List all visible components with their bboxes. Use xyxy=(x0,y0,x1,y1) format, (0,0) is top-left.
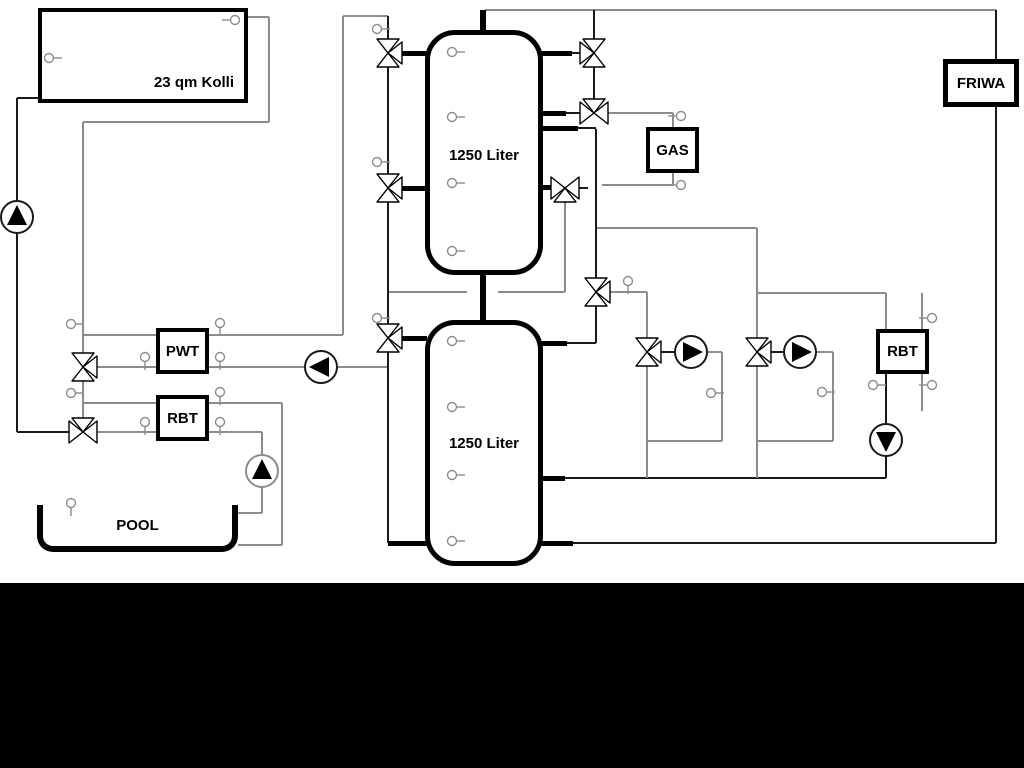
temperature-sensor-icon xyxy=(207,409,233,435)
pipe-segment xyxy=(281,403,283,545)
temperature-sensor-icon xyxy=(222,7,248,33)
pipe-segment xyxy=(758,440,833,442)
pipe-segment xyxy=(16,233,18,432)
rbt-left-label: RBT xyxy=(167,410,198,427)
pipe-segment xyxy=(647,440,722,442)
diagram-canvas: 23 qm Kolli 1250 Liter 1250 Liter PWT RB… xyxy=(0,0,1024,768)
pump-icon xyxy=(868,422,904,458)
rbt-right-label: RBT xyxy=(887,343,918,360)
pipe-segment xyxy=(338,366,388,368)
temperature-sensor-icon xyxy=(439,394,465,420)
temperature-sensor-icon xyxy=(36,45,62,71)
temperature-sensor-icon xyxy=(439,238,465,264)
pipe-segment xyxy=(596,227,757,229)
pump-icon xyxy=(303,349,339,385)
rbt-left-box: RBT xyxy=(156,395,209,441)
pipe-segment xyxy=(885,293,887,329)
buffer-tank-bottom-label: 1250 Liter xyxy=(430,435,538,452)
temperature-sensor-icon xyxy=(919,372,945,398)
pipe-segment xyxy=(593,64,595,102)
pipe-segment xyxy=(342,16,344,335)
three-way-valve-icon xyxy=(68,417,98,447)
pipe-segment xyxy=(387,351,389,543)
pump-icon xyxy=(0,199,35,235)
pipe-segment xyxy=(595,129,597,281)
pool-label: POOL xyxy=(116,517,159,534)
temperature-sensor-icon xyxy=(615,268,641,294)
pipe-segment xyxy=(261,487,263,513)
pipe-segment xyxy=(567,342,596,344)
gas-boiler-box: GAS xyxy=(646,127,699,173)
tank-port xyxy=(541,541,573,546)
pipe-segment xyxy=(607,112,673,114)
pipe-segment xyxy=(17,431,70,433)
pump-icon xyxy=(244,453,280,489)
three-way-valve-icon xyxy=(579,98,609,128)
three-way-valve-icon xyxy=(581,277,611,307)
rbt-right-box: RBT xyxy=(876,329,929,374)
pipe-segment xyxy=(756,363,758,478)
buffer-tank-top-label: 1250 Liter xyxy=(430,147,538,164)
pipe-segment xyxy=(268,17,270,122)
pipe-segment xyxy=(564,200,566,292)
pipe-segment xyxy=(248,16,269,18)
temperature-sensor-icon xyxy=(364,305,390,331)
tank-port xyxy=(480,10,486,32)
pipe-segment xyxy=(708,351,722,353)
temperature-sensor-icon xyxy=(439,104,465,130)
tank-port xyxy=(541,126,578,131)
tank-port xyxy=(541,51,572,56)
temperature-sensor-icon xyxy=(809,379,835,405)
pipe-segment xyxy=(602,184,673,186)
tank-port xyxy=(541,476,565,481)
temperature-sensor-icon xyxy=(364,16,390,42)
temperature-sensor-icon xyxy=(860,372,886,398)
heat-exchanger-box: PWT xyxy=(156,328,209,374)
temperature-sensor-icon xyxy=(207,310,233,336)
temperature-sensor-icon xyxy=(668,103,694,129)
temperature-sensor-icon xyxy=(132,409,158,435)
pipe-segment xyxy=(646,363,648,478)
pipe-segment xyxy=(595,303,597,343)
gas-boiler-label: GAS xyxy=(656,142,689,159)
pipe-segment xyxy=(485,9,996,11)
pipe-segment xyxy=(573,542,996,544)
solar-collector-box: 23 qm Kolli xyxy=(38,8,248,103)
pipe-segment xyxy=(83,121,269,123)
three-way-valve-icon xyxy=(632,337,662,367)
fresh-water-station-box: FRIWA xyxy=(943,59,1019,107)
tank-port xyxy=(400,336,427,341)
heat-exchanger-label: PWT xyxy=(166,343,199,360)
pipe-segment xyxy=(565,477,886,479)
pipe-segment xyxy=(261,432,263,455)
temperature-sensor-icon xyxy=(58,380,84,406)
temperature-sensor-icon xyxy=(439,170,465,196)
three-way-valve-icon xyxy=(742,337,772,367)
temperature-sensor-icon xyxy=(439,328,465,354)
temperature-sensor-icon xyxy=(132,344,158,370)
temperature-sensor-icon xyxy=(58,311,84,337)
three-way-valve-icon xyxy=(373,173,403,203)
temperature-sensor-icon xyxy=(698,380,724,406)
pipe-segment xyxy=(646,292,648,341)
temperature-sensor-icon xyxy=(919,305,945,331)
pipe-segment xyxy=(756,228,758,341)
temperature-sensor-icon xyxy=(207,344,233,370)
pipe-segment xyxy=(885,456,887,478)
pipe-segment xyxy=(388,291,467,293)
temperature-sensor-icon xyxy=(207,379,233,405)
three-way-valve-icon xyxy=(68,352,98,382)
tank-port xyxy=(541,341,567,346)
three-way-valve-icon xyxy=(579,38,609,68)
pipe-segment xyxy=(817,351,833,353)
fresh-water-station-label: FRIWA xyxy=(957,75,1005,92)
temperature-sensor-icon xyxy=(439,462,465,488)
temperature-sensor-icon xyxy=(439,39,465,65)
temperature-sensor-icon xyxy=(439,528,465,554)
pipe-segment xyxy=(757,292,886,294)
solar-collector-label: 23 qm Kolli xyxy=(154,74,234,91)
pump-icon xyxy=(673,334,709,370)
tank-port xyxy=(541,111,566,116)
temperature-sensor-icon xyxy=(364,149,390,175)
temperature-sensor-icon xyxy=(58,490,84,516)
tank-port xyxy=(400,51,427,56)
temperature-sensor-icon xyxy=(668,172,694,198)
pump-icon xyxy=(782,334,818,370)
tank-port xyxy=(400,186,427,191)
pipe-segment xyxy=(238,512,262,514)
pipe-segment xyxy=(17,97,38,99)
three-way-valve-icon xyxy=(373,38,403,68)
pipe-segment xyxy=(238,544,282,546)
pipe-segment xyxy=(16,98,18,201)
tank-port xyxy=(388,541,427,546)
footer-bar xyxy=(0,583,1024,768)
pipe-segment xyxy=(498,291,565,293)
tank-port xyxy=(480,273,486,322)
three-way-valve-icon xyxy=(550,173,580,203)
